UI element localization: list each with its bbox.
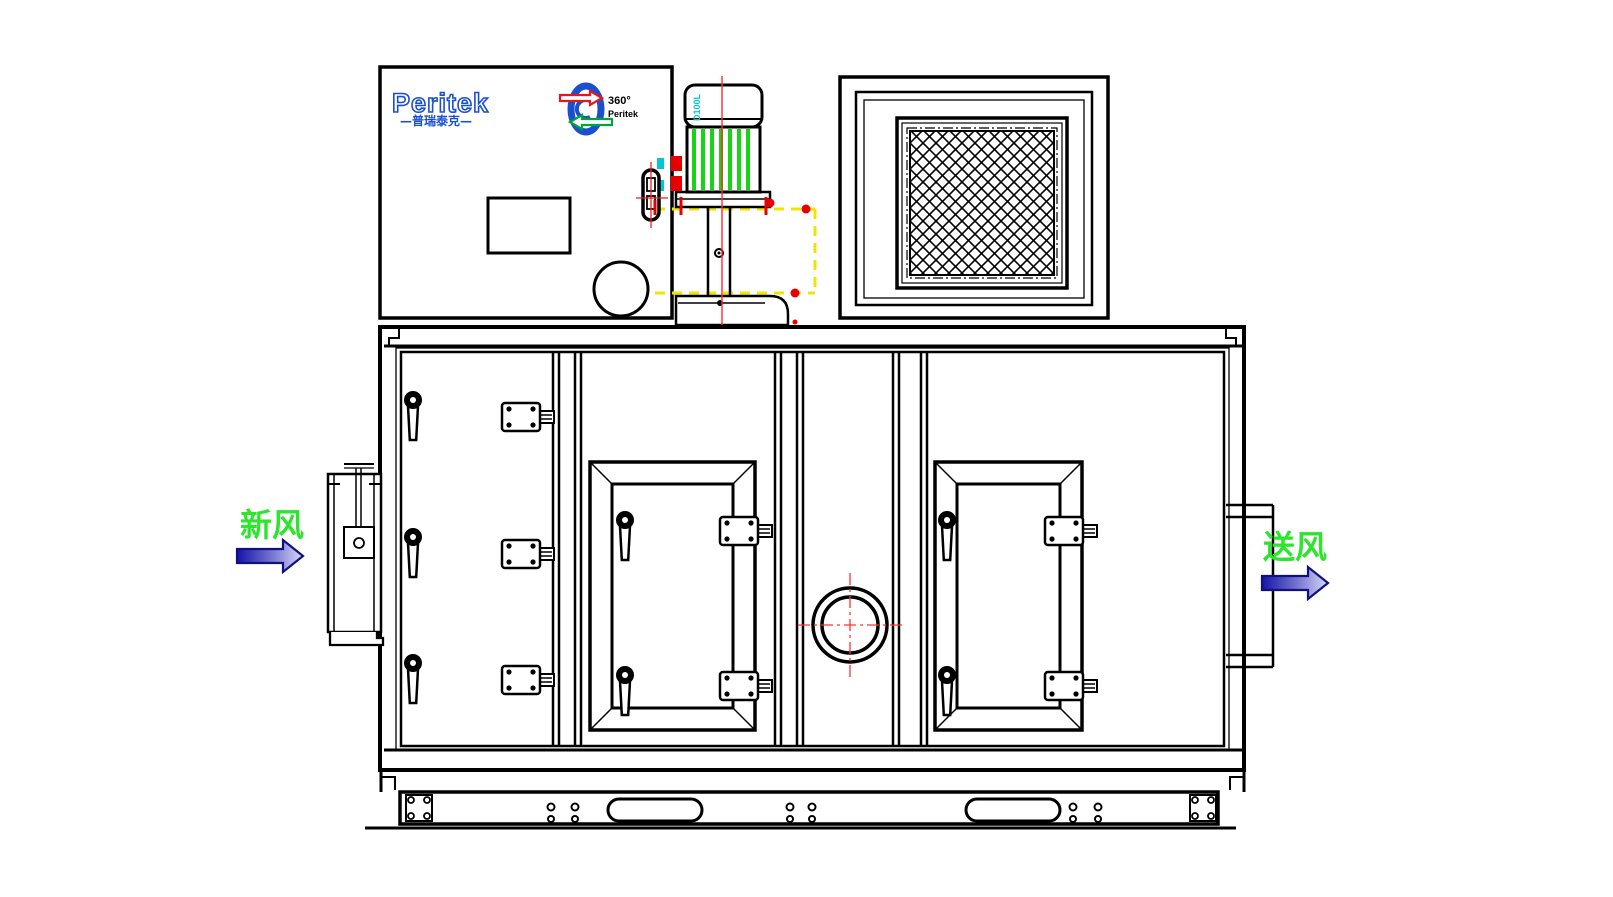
air-intake-grille (840, 77, 1108, 318)
inlet-label: 新风 (240, 506, 304, 544)
engineering-drawing-canvas: Peritek —普瑞泰克— 360° Peritek (0, 0, 1613, 897)
rotor-degree-text: 360° (608, 95, 631, 107)
outlet-flow: 送风 (1262, 528, 1328, 599)
motor-fins (687, 127, 760, 192)
access-door-middle (590, 462, 772, 730)
base-frame (365, 792, 1236, 828)
base-end-bracket-right (1190, 795, 1216, 821)
access-door-right (935, 462, 1097, 730)
grille-mesh (910, 131, 1054, 275)
lifting-slot (608, 799, 702, 821)
base-end-bracket-left (406, 795, 432, 821)
inlet-flow: 新风 (237, 506, 304, 572)
motor-support (676, 207, 788, 325)
fresh-air-damper (328, 464, 383, 645)
electrical-box (488, 198, 570, 253)
rotor-brand-text: Peritek (608, 109, 639, 119)
damper-bottom-flange (330, 632, 383, 645)
hidden-duct-outline (655, 209, 815, 293)
outlet-label: 送风 (1263, 528, 1327, 566)
motor-cap: D100L (685, 85, 762, 127)
brand-logo-cn-text: —普瑞泰克— (400, 113, 472, 128)
sight-glass-small (594, 262, 648, 316)
lifting-slot (966, 799, 1060, 821)
rotor-housing-box: Peritek —普瑞泰克— 360° Peritek (380, 67, 672, 318)
motor-model-text: D100L (692, 93, 702, 121)
inlet-arrow-icon (237, 540, 303, 572)
